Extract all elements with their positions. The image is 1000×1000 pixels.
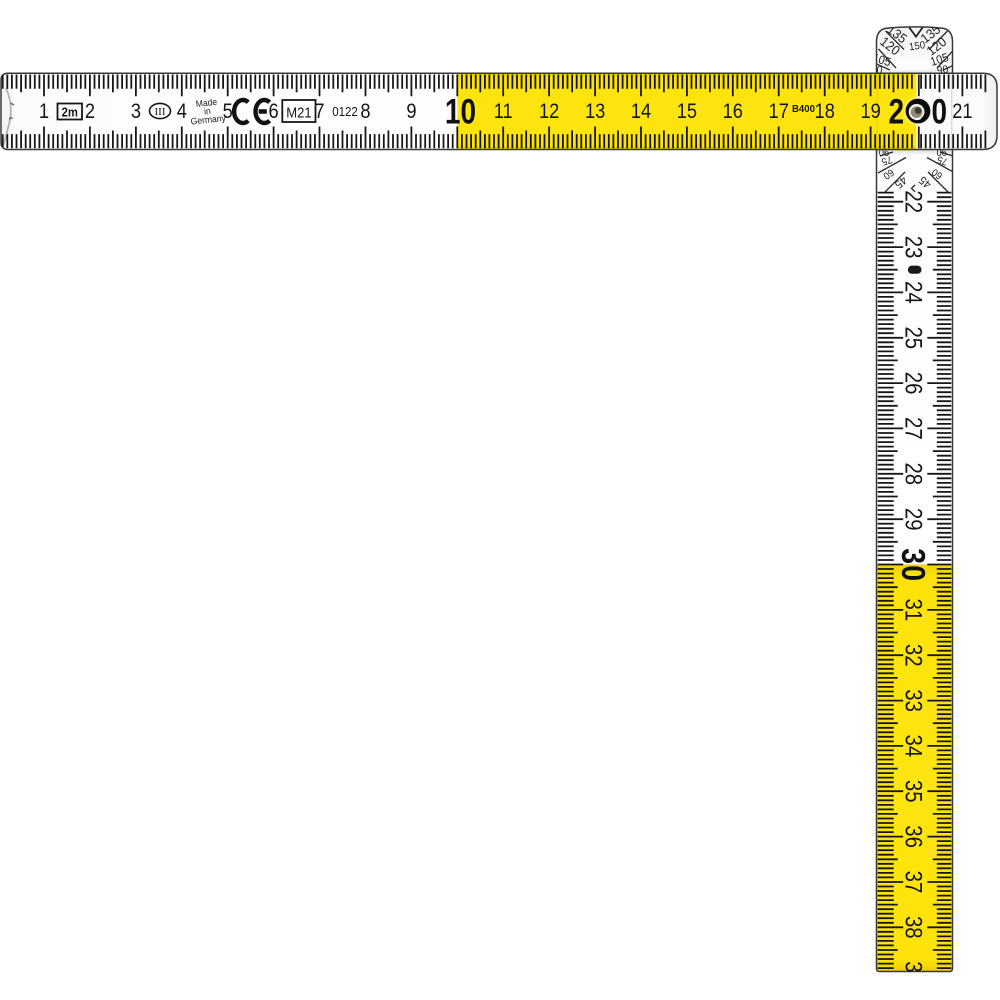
svg-text:0: 0 [932, 91, 948, 131]
svg-text:34: 34 [900, 735, 927, 758]
svg-text:III: III [155, 106, 166, 118]
svg-text:14: 14 [631, 100, 651, 124]
svg-text:35: 35 [900, 780, 927, 803]
svg-text:B400: B400 [792, 104, 815, 115]
svg-text:2m: 2m [62, 105, 78, 120]
svg-text:12: 12 [539, 100, 559, 124]
svg-text:30: 30 [894, 548, 932, 582]
svg-text:26: 26 [900, 372, 927, 395]
svg-text:4: 4 [177, 100, 187, 124]
svg-text:39: 39 [900, 961, 927, 984]
svg-text:2: 2 [889, 91, 905, 131]
svg-text:21: 21 [952, 100, 972, 124]
svg-text:33: 33 [900, 689, 927, 712]
svg-text:32: 32 [900, 644, 927, 667]
svg-text:24: 24 [900, 281, 927, 304]
svg-text:27: 27 [900, 417, 927, 440]
svg-text:31: 31 [900, 599, 927, 622]
svg-text:M21: M21 [286, 105, 311, 121]
svg-text:8: 8 [360, 100, 370, 124]
svg-text:36: 36 [900, 825, 927, 848]
svg-text:6: 6 [269, 100, 279, 124]
svg-text:16: 16 [723, 100, 743, 124]
svg-text:23: 23 [900, 236, 927, 259]
svg-text:9: 9 [406, 100, 416, 124]
svg-text:29: 29 [900, 508, 927, 531]
svg-text:17: 17 [769, 100, 789, 124]
svg-text:10: 10 [445, 91, 476, 131]
svg-text:15: 15 [677, 100, 697, 124]
svg-text:25: 25 [900, 326, 927, 349]
svg-text:28: 28 [900, 462, 927, 485]
svg-text:22: 22 [900, 190, 927, 213]
svg-text:19: 19 [860, 100, 880, 124]
svg-text:11: 11 [494, 100, 513, 124]
svg-text:0122: 0122 [332, 105, 358, 120]
svg-text:37: 37 [900, 871, 927, 894]
svg-text:3: 3 [131, 100, 141, 124]
svg-text:18: 18 [815, 100, 835, 124]
svg-text:38: 38 [900, 916, 927, 939]
svg-text:1: 1 [39, 100, 49, 124]
svg-text:2: 2 [85, 100, 95, 124]
svg-text:13: 13 [585, 100, 605, 124]
